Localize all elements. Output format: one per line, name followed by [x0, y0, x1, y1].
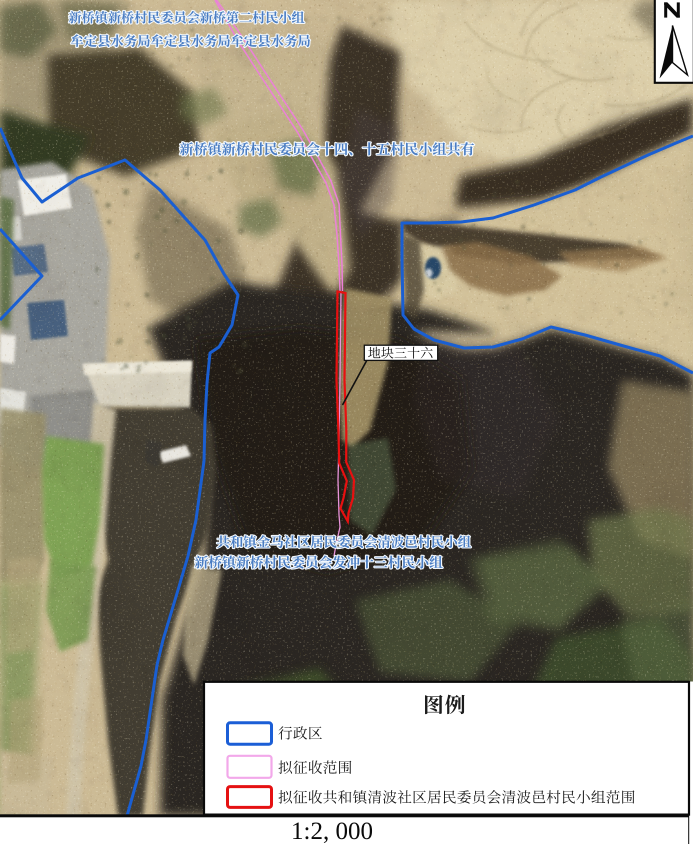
- svg-text:1:2, 000: 1:2, 000: [291, 818, 373, 844]
